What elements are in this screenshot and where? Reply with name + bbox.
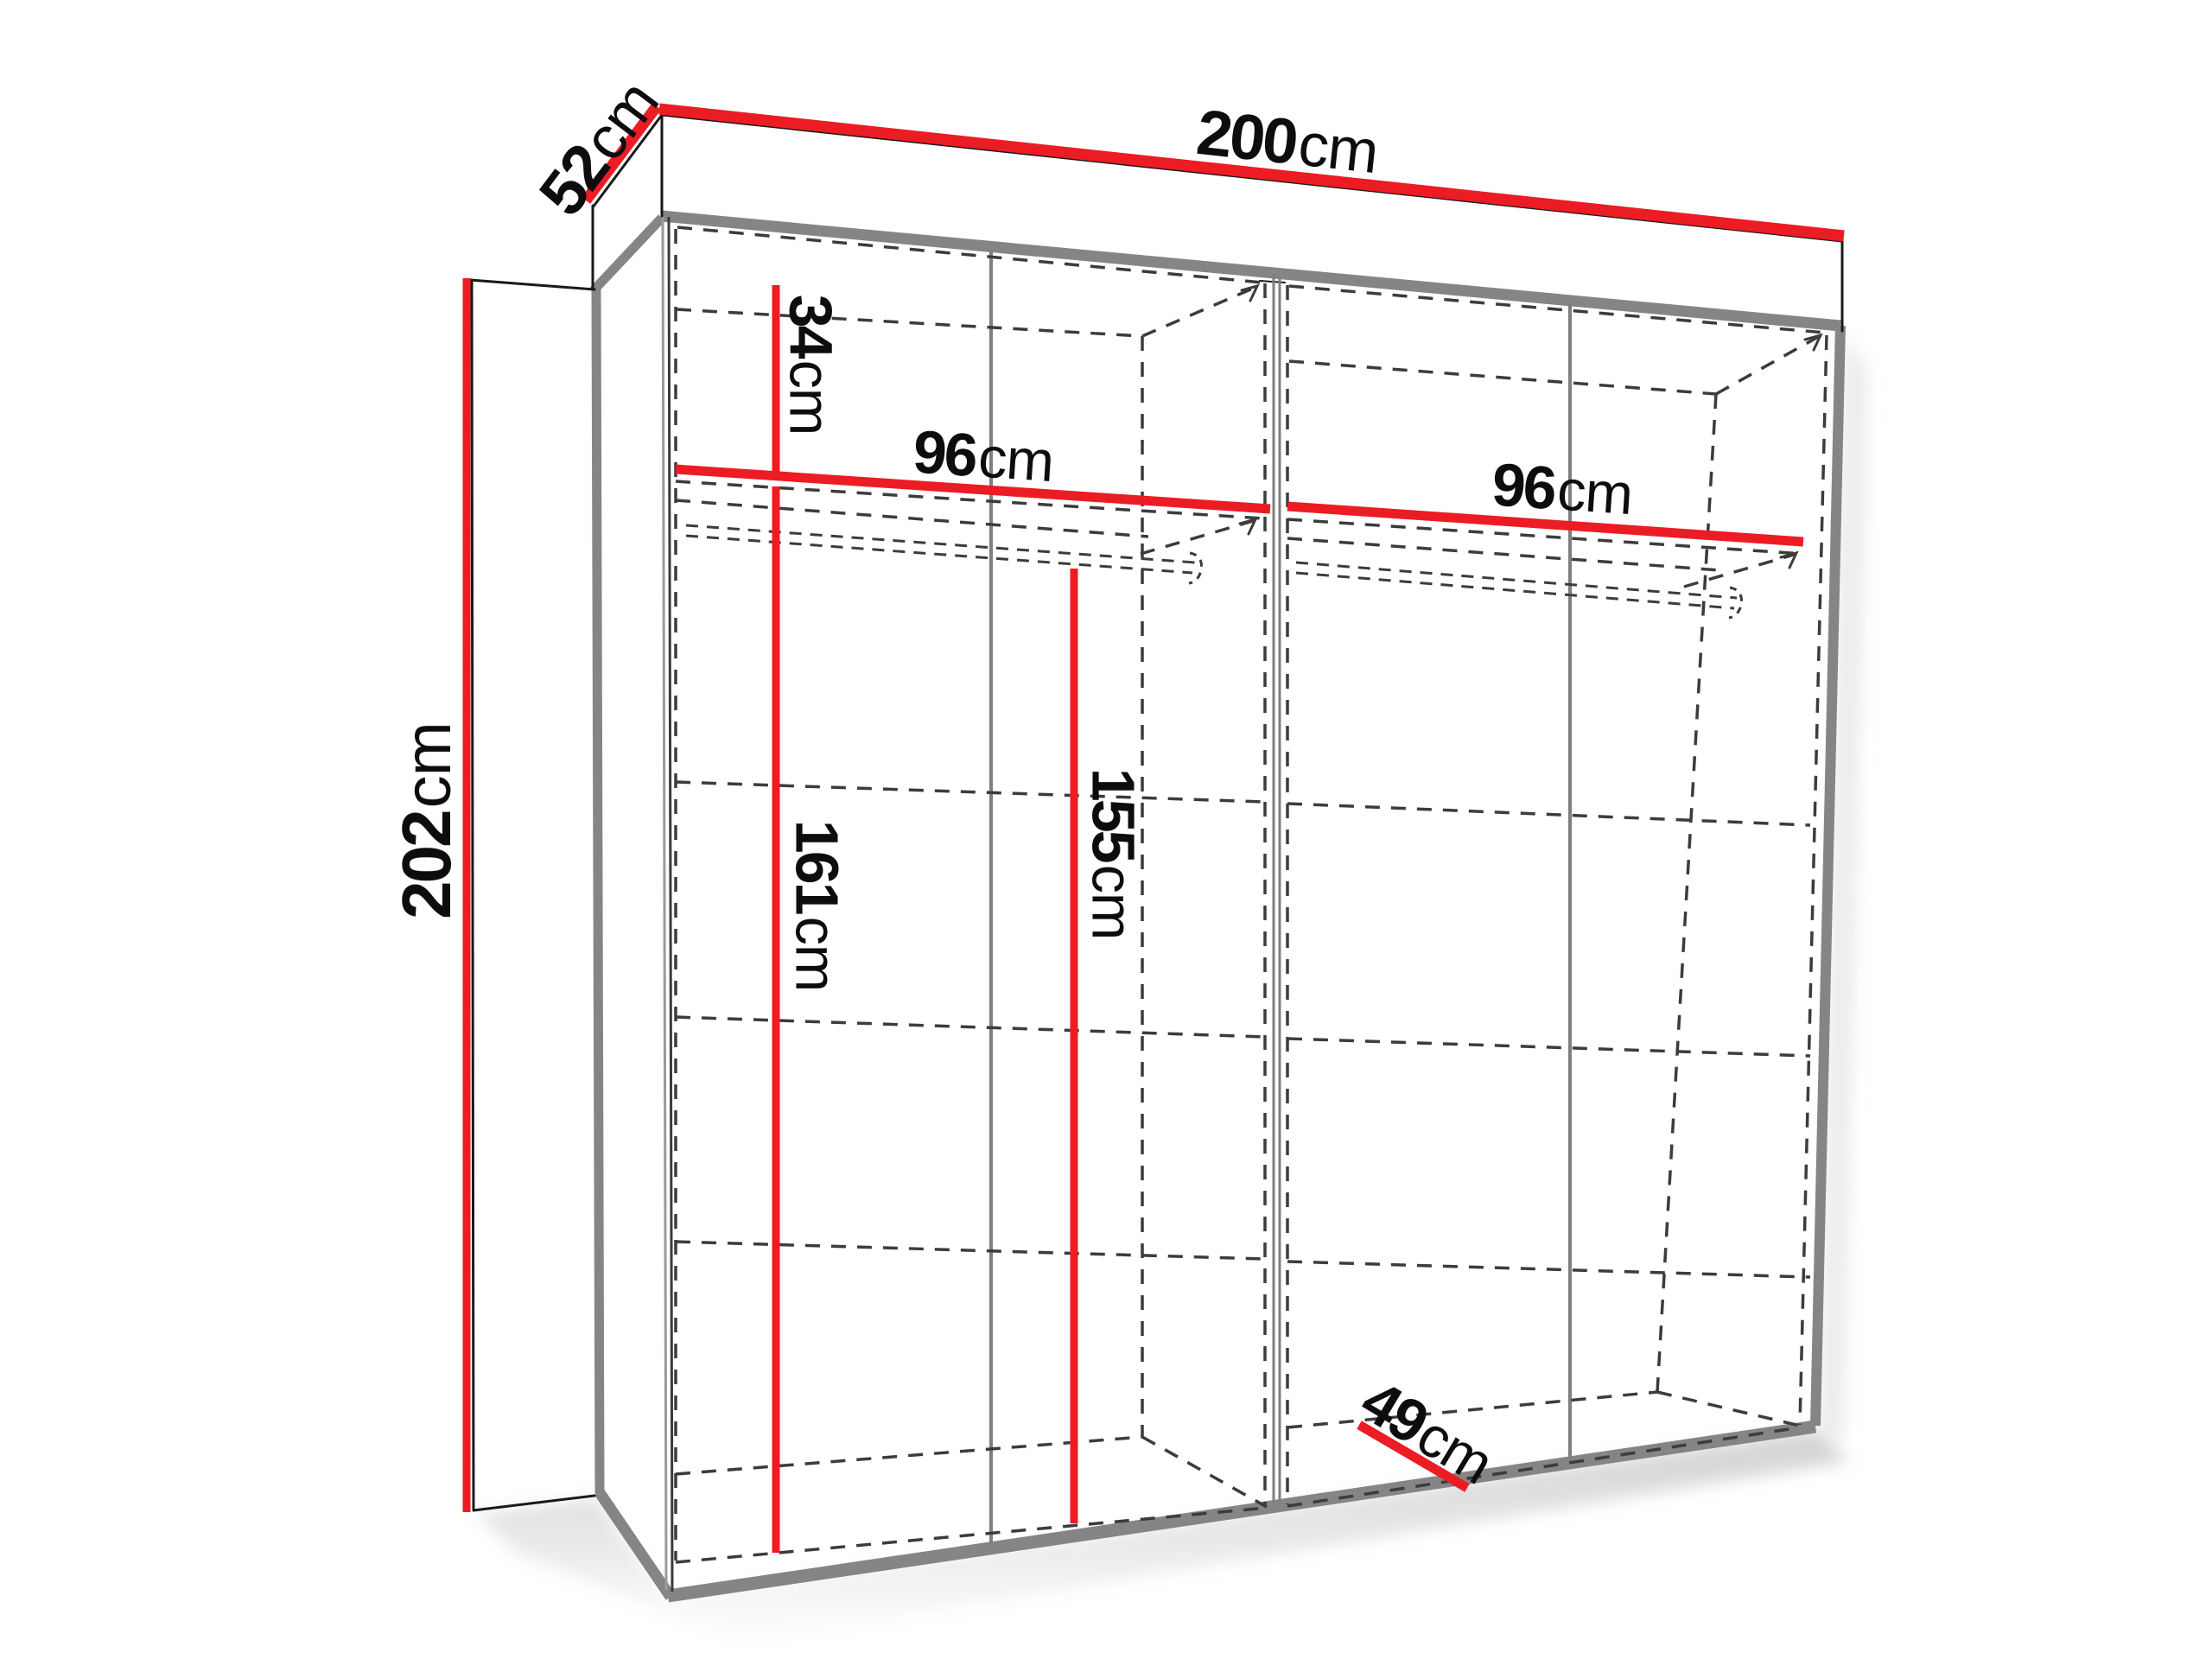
dimension-height-label: 202cm [392,722,461,919]
dimension-width-value: 200 [1193,96,1300,178]
dimension-top-shelf-value: 34 [777,295,844,357]
dimension-left-hang-unit: cm [783,917,847,992]
dimension-right-hang-label: 155cm [1083,768,1144,939]
dimension-width-unit: cm [1295,110,1382,186]
dimension-top-shelf-unit: cm [777,360,841,435]
dimension-right-width-label: 96cm [1491,454,1635,524]
dimension-right-width-value: 96 [1490,450,1556,522]
dimension-left-width-label: 96cm [912,421,1056,491]
dimension-left-hang-value: 161 [783,820,850,913]
dimension-right-width-unit: cm [1555,458,1634,527]
dimension-right-hang-value: 155 [1079,768,1147,861]
wardrobe-dimension-diagram: 200cm 52cm 202cm 34cm 96cm 96cm 161cm 15… [0,0,2212,1659]
dimension-right-hang-unit: cm [1079,865,1143,940]
dimension-lines [467,106,1844,1553]
dimension-left-hang-label: 161cm [786,820,848,991]
dimension-height-value: 202 [388,811,465,918]
dimension-left-width-unit: cm [976,425,1055,494]
dimension-height-unit: cm [391,722,465,808]
dimension-top-shelf-label: 34cm [780,295,842,435]
dimension-left-width-value: 96 [911,417,977,489]
